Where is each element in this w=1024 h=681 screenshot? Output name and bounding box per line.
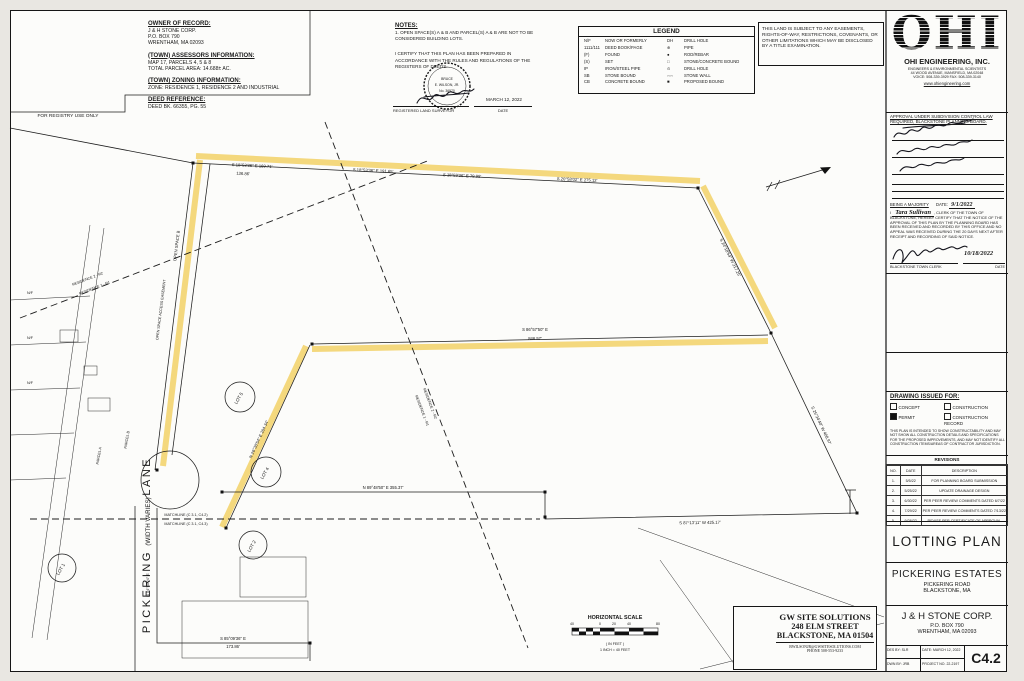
lot-label: LOT 5 bbox=[233, 391, 244, 405]
plan-sheet: BRUCE E. WILSON, JR. No. 36970 bbox=[0, 0, 1024, 681]
seal-name-2: E. WILSON, JR. bbox=[435, 83, 460, 87]
firm-block: OHI OHI ENGINEERING, INC. ENGINEERS & EN… bbox=[887, 11, 1007, 111]
legend-desc: SET bbox=[605, 59, 667, 66]
approval-date-value: 9/1/2022 bbox=[949, 202, 974, 209]
client-city: WRENTHAM, MA 02093 bbox=[886, 629, 1008, 635]
scale-tick: 80 bbox=[656, 622, 660, 626]
revision-no: 3. bbox=[887, 496, 901, 506]
owner-of-record-block: OWNER OF RECORD: J & H STONE CORP. P.O. … bbox=[148, 21, 393, 110]
gw-stamp-box: GW SITE SOLUTIONS 248 ELM STREET BLACKST… bbox=[733, 606, 877, 670]
abutter-label: N/F bbox=[27, 381, 34, 385]
gw-address: 248 ELM STREET bbox=[776, 622, 874, 631]
bearing-label: S 20°58'02" E 275.12' bbox=[557, 176, 598, 183]
issued-option-permit: PERMIT bbox=[890, 413, 944, 426]
bearing-label: S 18°53'36" E 191.65' bbox=[353, 167, 394, 174]
lot-label: LOT 4 bbox=[259, 466, 270, 480]
legend-desc: PIPE bbox=[684, 45, 749, 52]
issued-fine-print: THIS PLAN IS INTENDED TO SHOW CONSTRUCTA… bbox=[890, 429, 1006, 446]
bearing-label: 846.57' bbox=[528, 336, 542, 341]
legend-symbol: ● bbox=[667, 52, 684, 59]
drawing-issued-block: DRAWING ISSUED FOR: CONCEPT CONSTRUCTION… bbox=[890, 394, 1006, 446]
project-name: PICKERING ESTATES bbox=[886, 569, 1008, 580]
owner-city: WRENTHAM, MA 02093 bbox=[148, 40, 393, 46]
legend-symbol: ◦◦◦◦ bbox=[667, 73, 684, 80]
legend-desc: FOUND bbox=[605, 52, 667, 59]
legend-abbr: (F) bbox=[584, 52, 605, 59]
legend-symbol: ⊙ bbox=[667, 66, 684, 73]
legend-desc: CONCRETE BOUND bbox=[605, 79, 667, 86]
notes-block: NOTES: 1. OPEN SPACE(S) A & B AND PARCEL… bbox=[395, 23, 575, 70]
issued-option-construction-record: CONSTRUCTION RECORD bbox=[944, 413, 996, 426]
bearing-label: S 25°34'40" W 408.97' bbox=[810, 405, 833, 445]
revision-date: 6/30/22 bbox=[900, 496, 921, 506]
bearing-label: 136.86' bbox=[236, 171, 250, 177]
clerk-date-label: DATE bbox=[963, 263, 1005, 269]
legend-desc: PROPOSED BOUND bbox=[684, 79, 749, 86]
revisions-header: DATE bbox=[900, 466, 921, 476]
sheet-number: C4.2 bbox=[964, 645, 1008, 671]
bearing-label: S 18°59'36" E 79.98' bbox=[443, 172, 482, 179]
owner-heading: OWNER OF RECORD: bbox=[148, 21, 393, 28]
clerk-text: , CLERK OF THE TOWN OF BLACKSTONE, HEREB… bbox=[890, 210, 1003, 239]
scale-tick: 0 bbox=[599, 622, 601, 626]
legend-desc: ROD/REBAR bbox=[684, 52, 749, 59]
revisions-table: NO. DATE DESCRIPTION 1.5/5/22FOR PLANNIN… bbox=[886, 465, 1008, 526]
street-name: PICKERING (WIDTH VARIES) LANE bbox=[137, 457, 154, 633]
notes-heading: NOTES: bbox=[395, 23, 575, 30]
issued-option-construction: CONSTRUCTION bbox=[944, 403, 1006, 410]
scale-bar: 40 0 20 40 80 HORIZONTAL SCALE ( IN FEET… bbox=[570, 615, 660, 652]
clerk-certification: I Tara Sullivan, CLERK OF THE TOWN OF BL… bbox=[890, 211, 1005, 240]
legend-abbr: CB bbox=[584, 79, 605, 86]
legend-grid: N/FNOW OR FORMERLYDHDRILL HOLE 1111/111D… bbox=[579, 37, 754, 87]
revision-no: 4. bbox=[887, 506, 901, 516]
open-space-easement-label: OPEN SPACE ACCESS EASEMENT bbox=[155, 279, 166, 341]
scale-unit: ( IN FEET ) bbox=[606, 642, 624, 646]
sheet-date: DATE: MARCH 12, 2022 bbox=[922, 648, 960, 652]
assessors-area: TOTAL PARCEL AREA: 14.688± AC. bbox=[148, 66, 393, 72]
firm-name: OHI ENGINEERING, INC. bbox=[887, 57, 1007, 66]
gw-city: BLACKSTONE, MA 01504 bbox=[776, 631, 874, 640]
issued-option-label: CONSTRUCTION bbox=[953, 405, 988, 410]
firm-website: www.ohiengineering.com bbox=[887, 81, 1007, 86]
surveyor-date-value: MARCH 12, 2022 bbox=[476, 97, 532, 102]
revision-desc: FOR PLANNING BOARD SUBMISSION bbox=[921, 476, 1007, 486]
revision-date: 5/25/22 bbox=[900, 486, 921, 496]
firm-phones: VOICE: 508-339-3929 FAX: 508-339-3140 bbox=[887, 75, 1007, 79]
approval-heading-line: REQUIRED, BLACKSTONE PLANNING BOARD. bbox=[890, 119, 1004, 124]
parcel-label: PARCEL A bbox=[96, 446, 103, 465]
scale-tick: 40 bbox=[570, 622, 574, 626]
clerk-signature-scribble bbox=[893, 246, 967, 262]
approval-date-label: DATE: bbox=[936, 202, 948, 207]
lot-label: LOT 1 bbox=[55, 562, 66, 576]
revision-desc: UPDATE DRAINAGE DESIGN bbox=[921, 486, 1007, 496]
scale-title: HORIZONTAL SCALE bbox=[588, 615, 643, 621]
legend-symbol: ■ bbox=[667, 79, 684, 86]
revisions-header: NO. bbox=[887, 466, 901, 476]
revision-date: 7/29/22 bbox=[900, 506, 921, 516]
legend-abbr: (S) bbox=[584, 59, 605, 66]
bearing-label: S 85°09'36" E bbox=[220, 636, 246, 641]
legend-desc: IRON/STEEL PIPE bbox=[605, 66, 667, 73]
gw-text: GW SITE SOLUTIONS 248 ELM STREET BLACKST… bbox=[776, 612, 874, 653]
revisions-block: REVISIONS NO. DATE DESCRIPTION 1.5/5/22F… bbox=[886, 456, 1008, 526]
clerk-date-value: 10/18/2022 bbox=[964, 250, 993, 257]
revision-desc: PER PEER REVIEW COMMENTS DATED 7/13/22 bbox=[921, 506, 1007, 516]
issued-option-label: PERMIT bbox=[899, 415, 916, 420]
surveyor-date-label: DATE bbox=[474, 106, 532, 113]
client-block: J & H STONE CORP. P.O. BOX 790 WRENTHAM,… bbox=[886, 605, 1008, 645]
issued-option-label: CONSTRUCTION RECORD bbox=[944, 415, 988, 425]
majority-label: BEING A MAJORITY bbox=[890, 202, 929, 207]
legend-desc: STONE BOUND bbox=[605, 73, 667, 80]
legend-desc: DRILL HOLE bbox=[684, 38, 749, 45]
issued-option-label: CONCEPT bbox=[899, 405, 920, 410]
registry-label: FOR REGISTRY USE ONLY bbox=[18, 114, 118, 119]
legend-desc: DRILL HOLE bbox=[684, 66, 749, 73]
abutter-label: N/F bbox=[27, 291, 34, 295]
bearing-label: N 89°48'50" E 355.37' bbox=[363, 485, 404, 490]
deed-info: DEED BK. 66355, PG. 55 bbox=[148, 104, 393, 110]
seal-name-1: BRUCE bbox=[441, 77, 454, 81]
approval-heading: APPROVAL UNDER SUBDIVISION CONTROL LAW R… bbox=[890, 114, 1004, 125]
boundary-lines bbox=[10, 128, 857, 528]
legend-abbr: SB bbox=[584, 73, 605, 80]
lot-label: LOT 2 bbox=[246, 539, 257, 553]
title-disclaimer: THIS LAND IS SUBJECT TO ANY EASEMENTS, R… bbox=[758, 22, 884, 66]
revisions-header: DESCRIPTION bbox=[921, 466, 1007, 476]
legend-desc: DEED BOOK/PAGE bbox=[605, 45, 667, 52]
legend-abbr: IP bbox=[584, 66, 605, 73]
north-arrow-icon bbox=[766, 167, 831, 191]
street-name-part: PICKERING bbox=[141, 550, 153, 633]
gw-name: GW SITE SOLUTIONS bbox=[776, 612, 874, 622]
checkbox-icon bbox=[944, 413, 951, 420]
client-name: J & H STONE CORP. bbox=[886, 611, 1008, 622]
legend-desc: STONE/CONCRETE BOUND bbox=[684, 59, 749, 66]
drawn-by: DWN BY: JRB bbox=[887, 662, 909, 666]
checkbox-icon bbox=[944, 403, 951, 410]
surveyor-signature-label: REGISTERED LAND SURVEYOR bbox=[393, 106, 469, 113]
legend-symbol: □ bbox=[667, 59, 684, 66]
assessors-heading: (TOWN) ASSESSORS INFORMATION: bbox=[148, 53, 393, 60]
parcel-label: PARCEL B bbox=[123, 430, 130, 449]
project-title-block: PICKERING ESTATES PICKERING ROAD BLACKST… bbox=[886, 562, 1008, 605]
monument-markers bbox=[156, 162, 859, 645]
legend-symbol: ⊕ bbox=[667, 45, 684, 52]
note-1b: CONSIDERED BUILDING LOTS. bbox=[395, 36, 575, 42]
plan-title: LOTTING PLAN bbox=[886, 521, 1008, 562]
street-width-note: (WIDTH VARIES) bbox=[145, 496, 152, 546]
scale-tick: 20 bbox=[612, 622, 616, 626]
legend-abbr: 1111/111 bbox=[584, 45, 605, 52]
legend-desc: NOW OR FORMERLY bbox=[605, 38, 667, 45]
revision-date: 5/5/22 bbox=[900, 476, 921, 486]
street-name-part: LANE bbox=[141, 457, 153, 496]
project-town: BLACKSTONE, MA bbox=[886, 588, 1008, 594]
matchline-label: MATCHLINE (C 3.1, C4.3) bbox=[164, 522, 207, 526]
bearing-label: S 18°53'36" E 169.71' bbox=[232, 162, 273, 169]
scale-tick: 40 bbox=[627, 622, 631, 626]
zone-boundary-lines bbox=[20, 122, 540, 648]
abutter-label: N/F bbox=[27, 336, 34, 340]
bearing-label: S 87°13'11" W 425.17' bbox=[679, 520, 721, 526]
bearing-label: 173.86' bbox=[226, 644, 240, 649]
gw-email: BWILSONJR@GWSITESOLUTIONS.COM bbox=[776, 642, 874, 649]
majority-row: BEING A MAJORITY DATE: 9/1/2022 bbox=[890, 202, 1006, 208]
legend-title: LEGEND bbox=[579, 27, 754, 37]
project-number: PROJECT NO. 22-2197 bbox=[922, 662, 959, 666]
gw-phone: PHONE 508-553-9233 bbox=[776, 649, 874, 653]
scale-ratio: 1 INCH = 40 FEET bbox=[600, 648, 631, 652]
zoning-heading: (TOWN) ZONING INFORMATION: bbox=[148, 78, 393, 85]
deed-heading: DEED REFERENCE: bbox=[148, 97, 393, 104]
title-strip: DES BY: SLR DWN BY: JRB DATE: MARCH 12, … bbox=[886, 645, 1008, 671]
legend-abbr: N/F bbox=[584, 38, 605, 45]
revision-no: 1. bbox=[887, 476, 901, 486]
checkbox-checked-icon bbox=[890, 413, 897, 420]
zoning-info: ZONE: RESIDENCE 1, RESIDENCE 2 AND INDUS… bbox=[148, 85, 393, 91]
certification-line: REGISTERS OF DEEDS. bbox=[395, 64, 575, 70]
legend-box: LEGEND N/FNOW OR FORMERLYDHDRILL HOLE 11… bbox=[578, 26, 755, 94]
firm-logo: OHI bbox=[887, 11, 1007, 55]
zone-labels: MATCHLINE (C 3.1, C4.2) MATCHLINE (C 3.1… bbox=[27, 230, 438, 526]
designed-by: DES BY: SLR bbox=[887, 648, 908, 652]
revision-desc: PER PEER REVIEW COMMENTS DATED 6/7/22 bbox=[921, 496, 1007, 506]
bearing-label: S 86°57'50" E bbox=[522, 327, 548, 332]
clerk-signature-label: BLACKSTONE TOWN CLERK bbox=[890, 263, 958, 269]
legend-desc: STONE WALL bbox=[684, 73, 749, 80]
issued-option-concept: CONCEPT bbox=[890, 403, 944, 410]
revisions-title: REVISIONS bbox=[886, 456, 1008, 465]
highlighted-boundary bbox=[163, 156, 775, 527]
legend-symbol: DH bbox=[667, 38, 684, 45]
checkbox-icon bbox=[890, 403, 897, 410]
issued-heading: DRAWING ISSUED FOR: bbox=[890, 394, 1006, 400]
matchline-label: MATCHLINE (C 3.1, C4.2) bbox=[164, 513, 207, 517]
revision-no: 2. bbox=[887, 486, 901, 496]
